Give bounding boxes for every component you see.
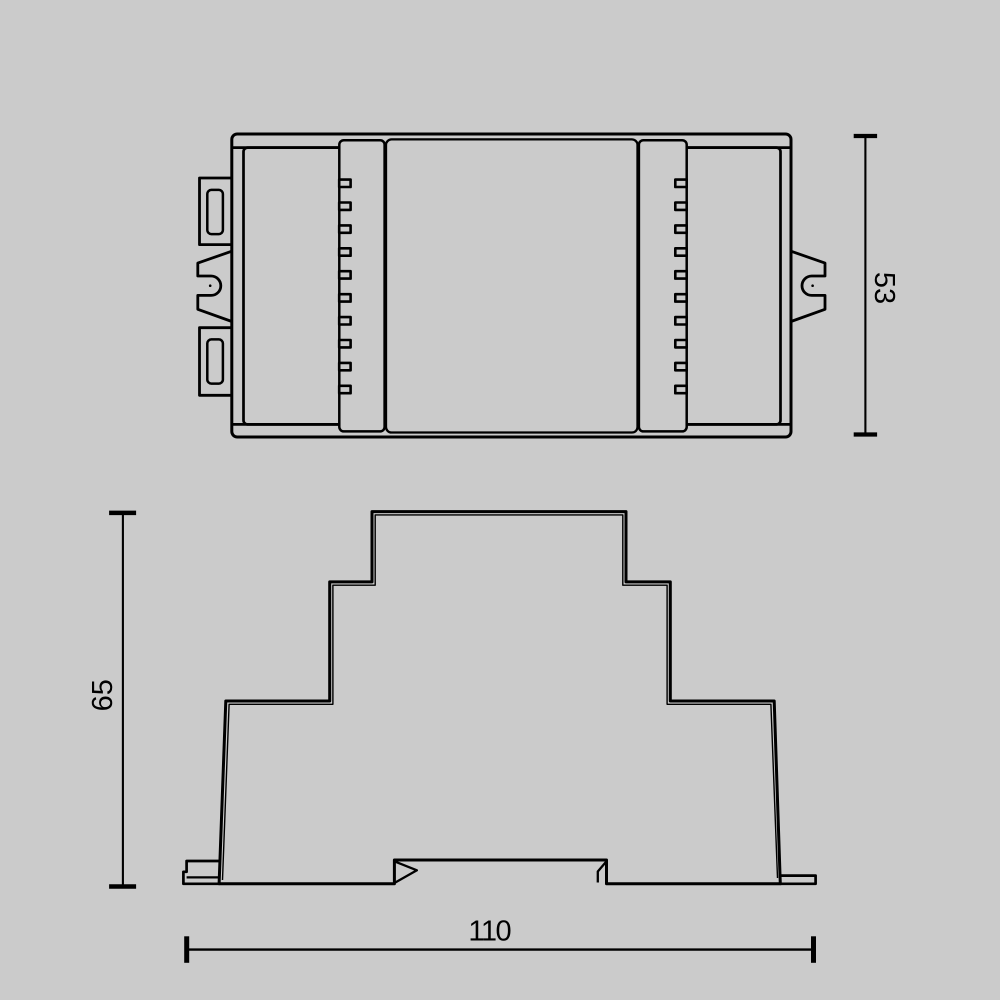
svg-text:110: 110 (468, 915, 510, 947)
svg-text:53: 53 (868, 272, 900, 304)
svg-text:65: 65 (87, 679, 119, 711)
